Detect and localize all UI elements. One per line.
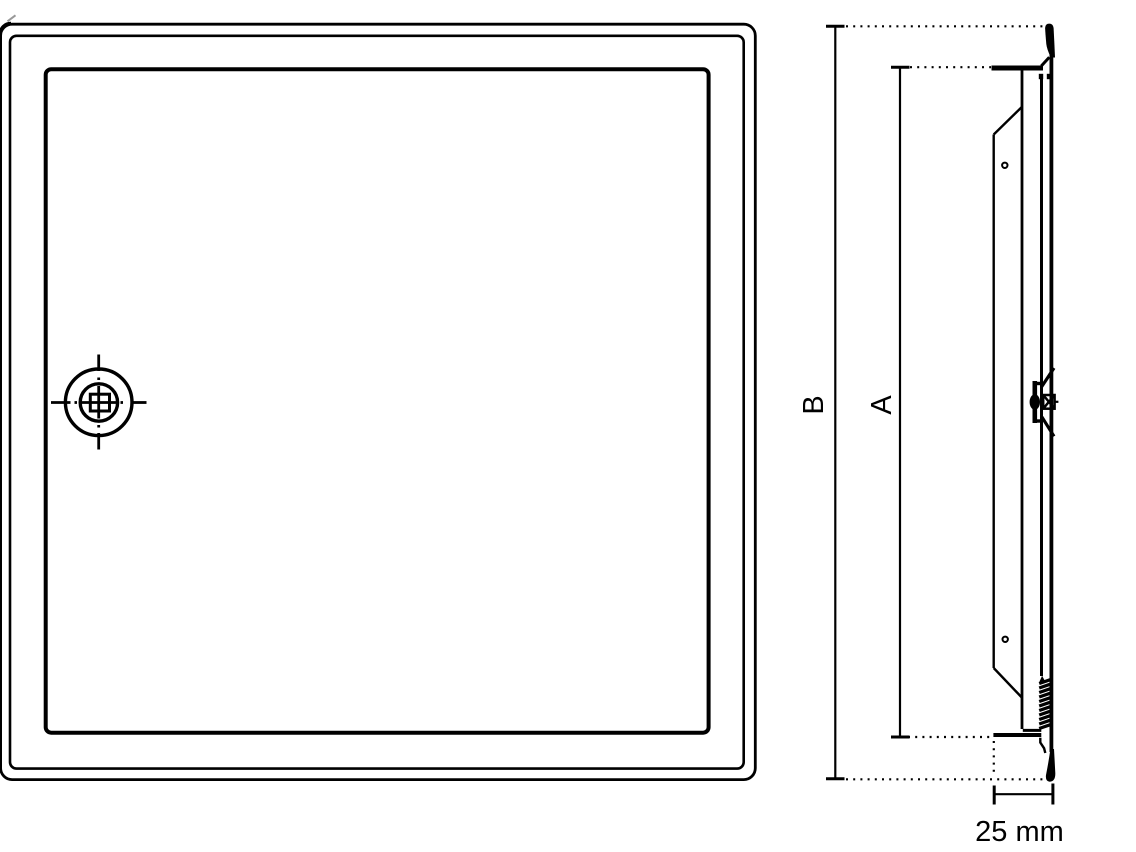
svg-text:A: A — [866, 395, 898, 415]
svg-text:B: B — [798, 395, 830, 414]
svg-text:25 mm: 25 mm — [975, 816, 1064, 848]
